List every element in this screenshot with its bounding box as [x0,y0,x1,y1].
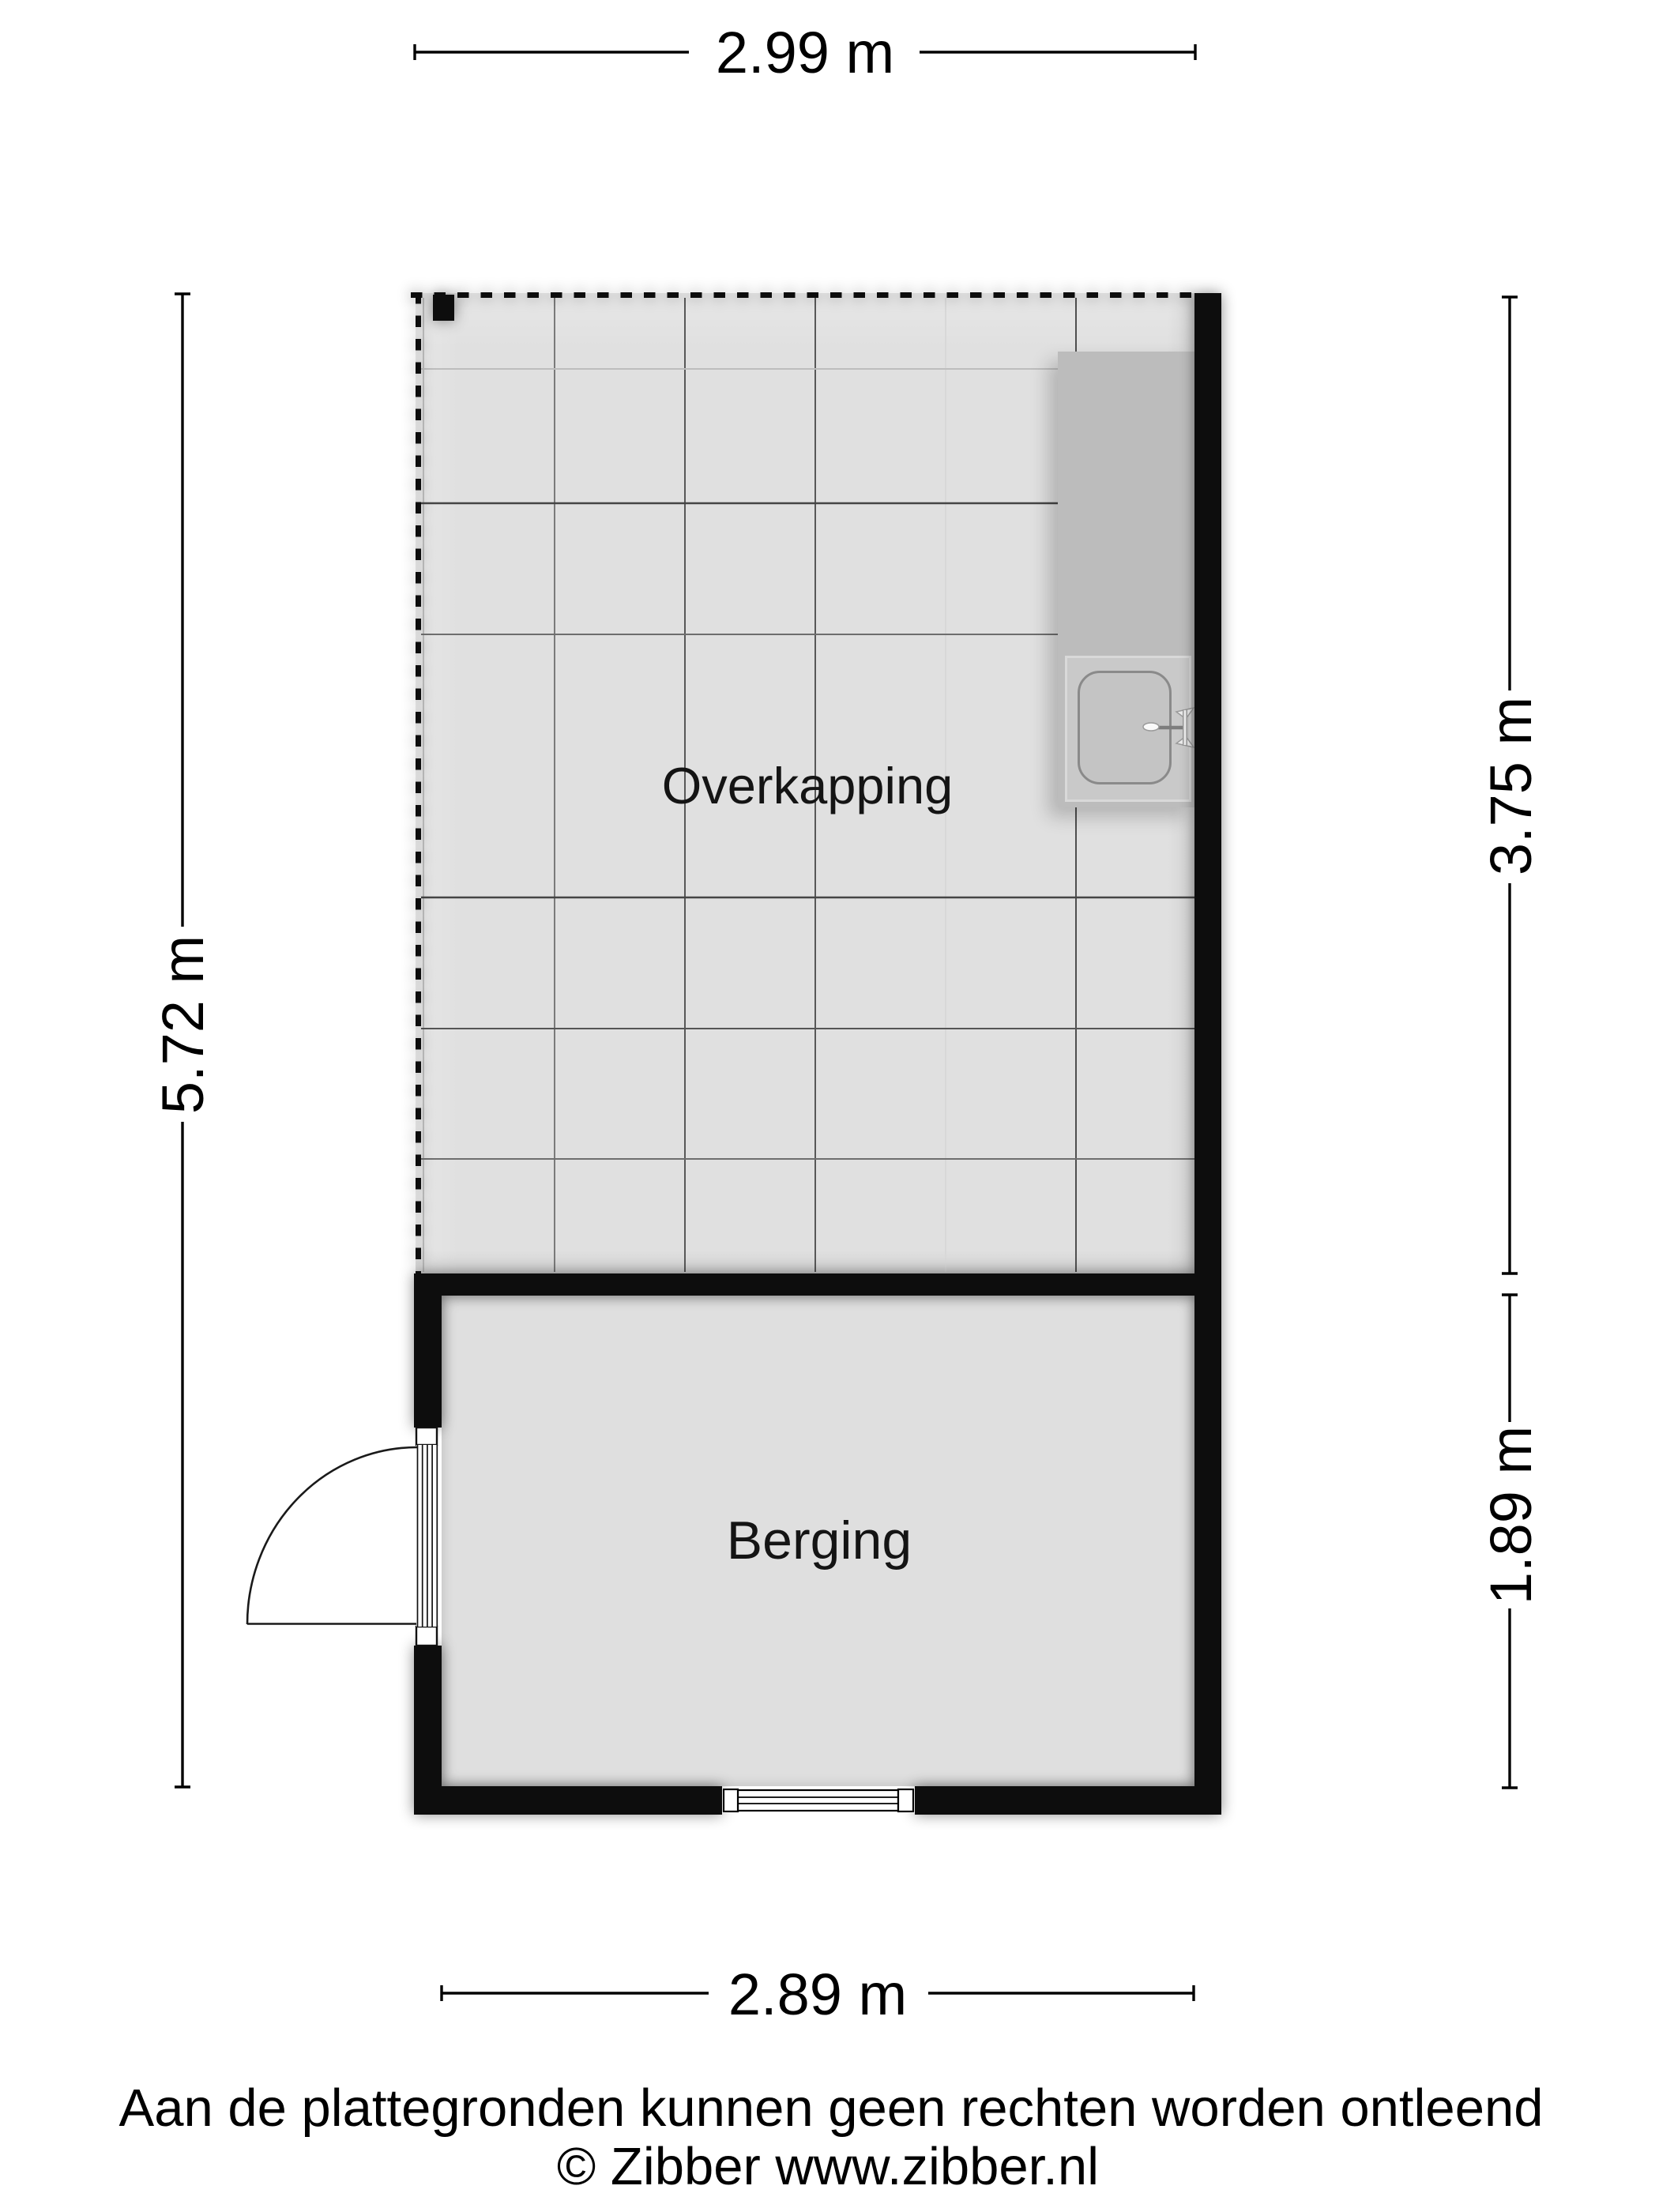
svg-text:2.89 m: 2.89 m [728,1962,907,2027]
svg-text:Overkapping: Overkapping [662,757,954,814]
svg-text:5.72 m: 5.72 m [150,935,216,1114]
svg-text:1.89 m: 1.89 m [1478,1426,1544,1604]
svg-text:3.75 m: 3.75 m [1478,697,1544,875]
svg-text:2.99 m: 2.99 m [716,20,894,85]
svg-text:Berging: Berging [727,1510,912,1571]
svg-text:Aan de plattegronden kunnen ge: Aan de plattegronden kunnen geen rechten… [119,2078,1544,2138]
svg-text:© Zibber www.zibber.nl: © Zibber www.zibber.nl [557,2137,1099,2196]
